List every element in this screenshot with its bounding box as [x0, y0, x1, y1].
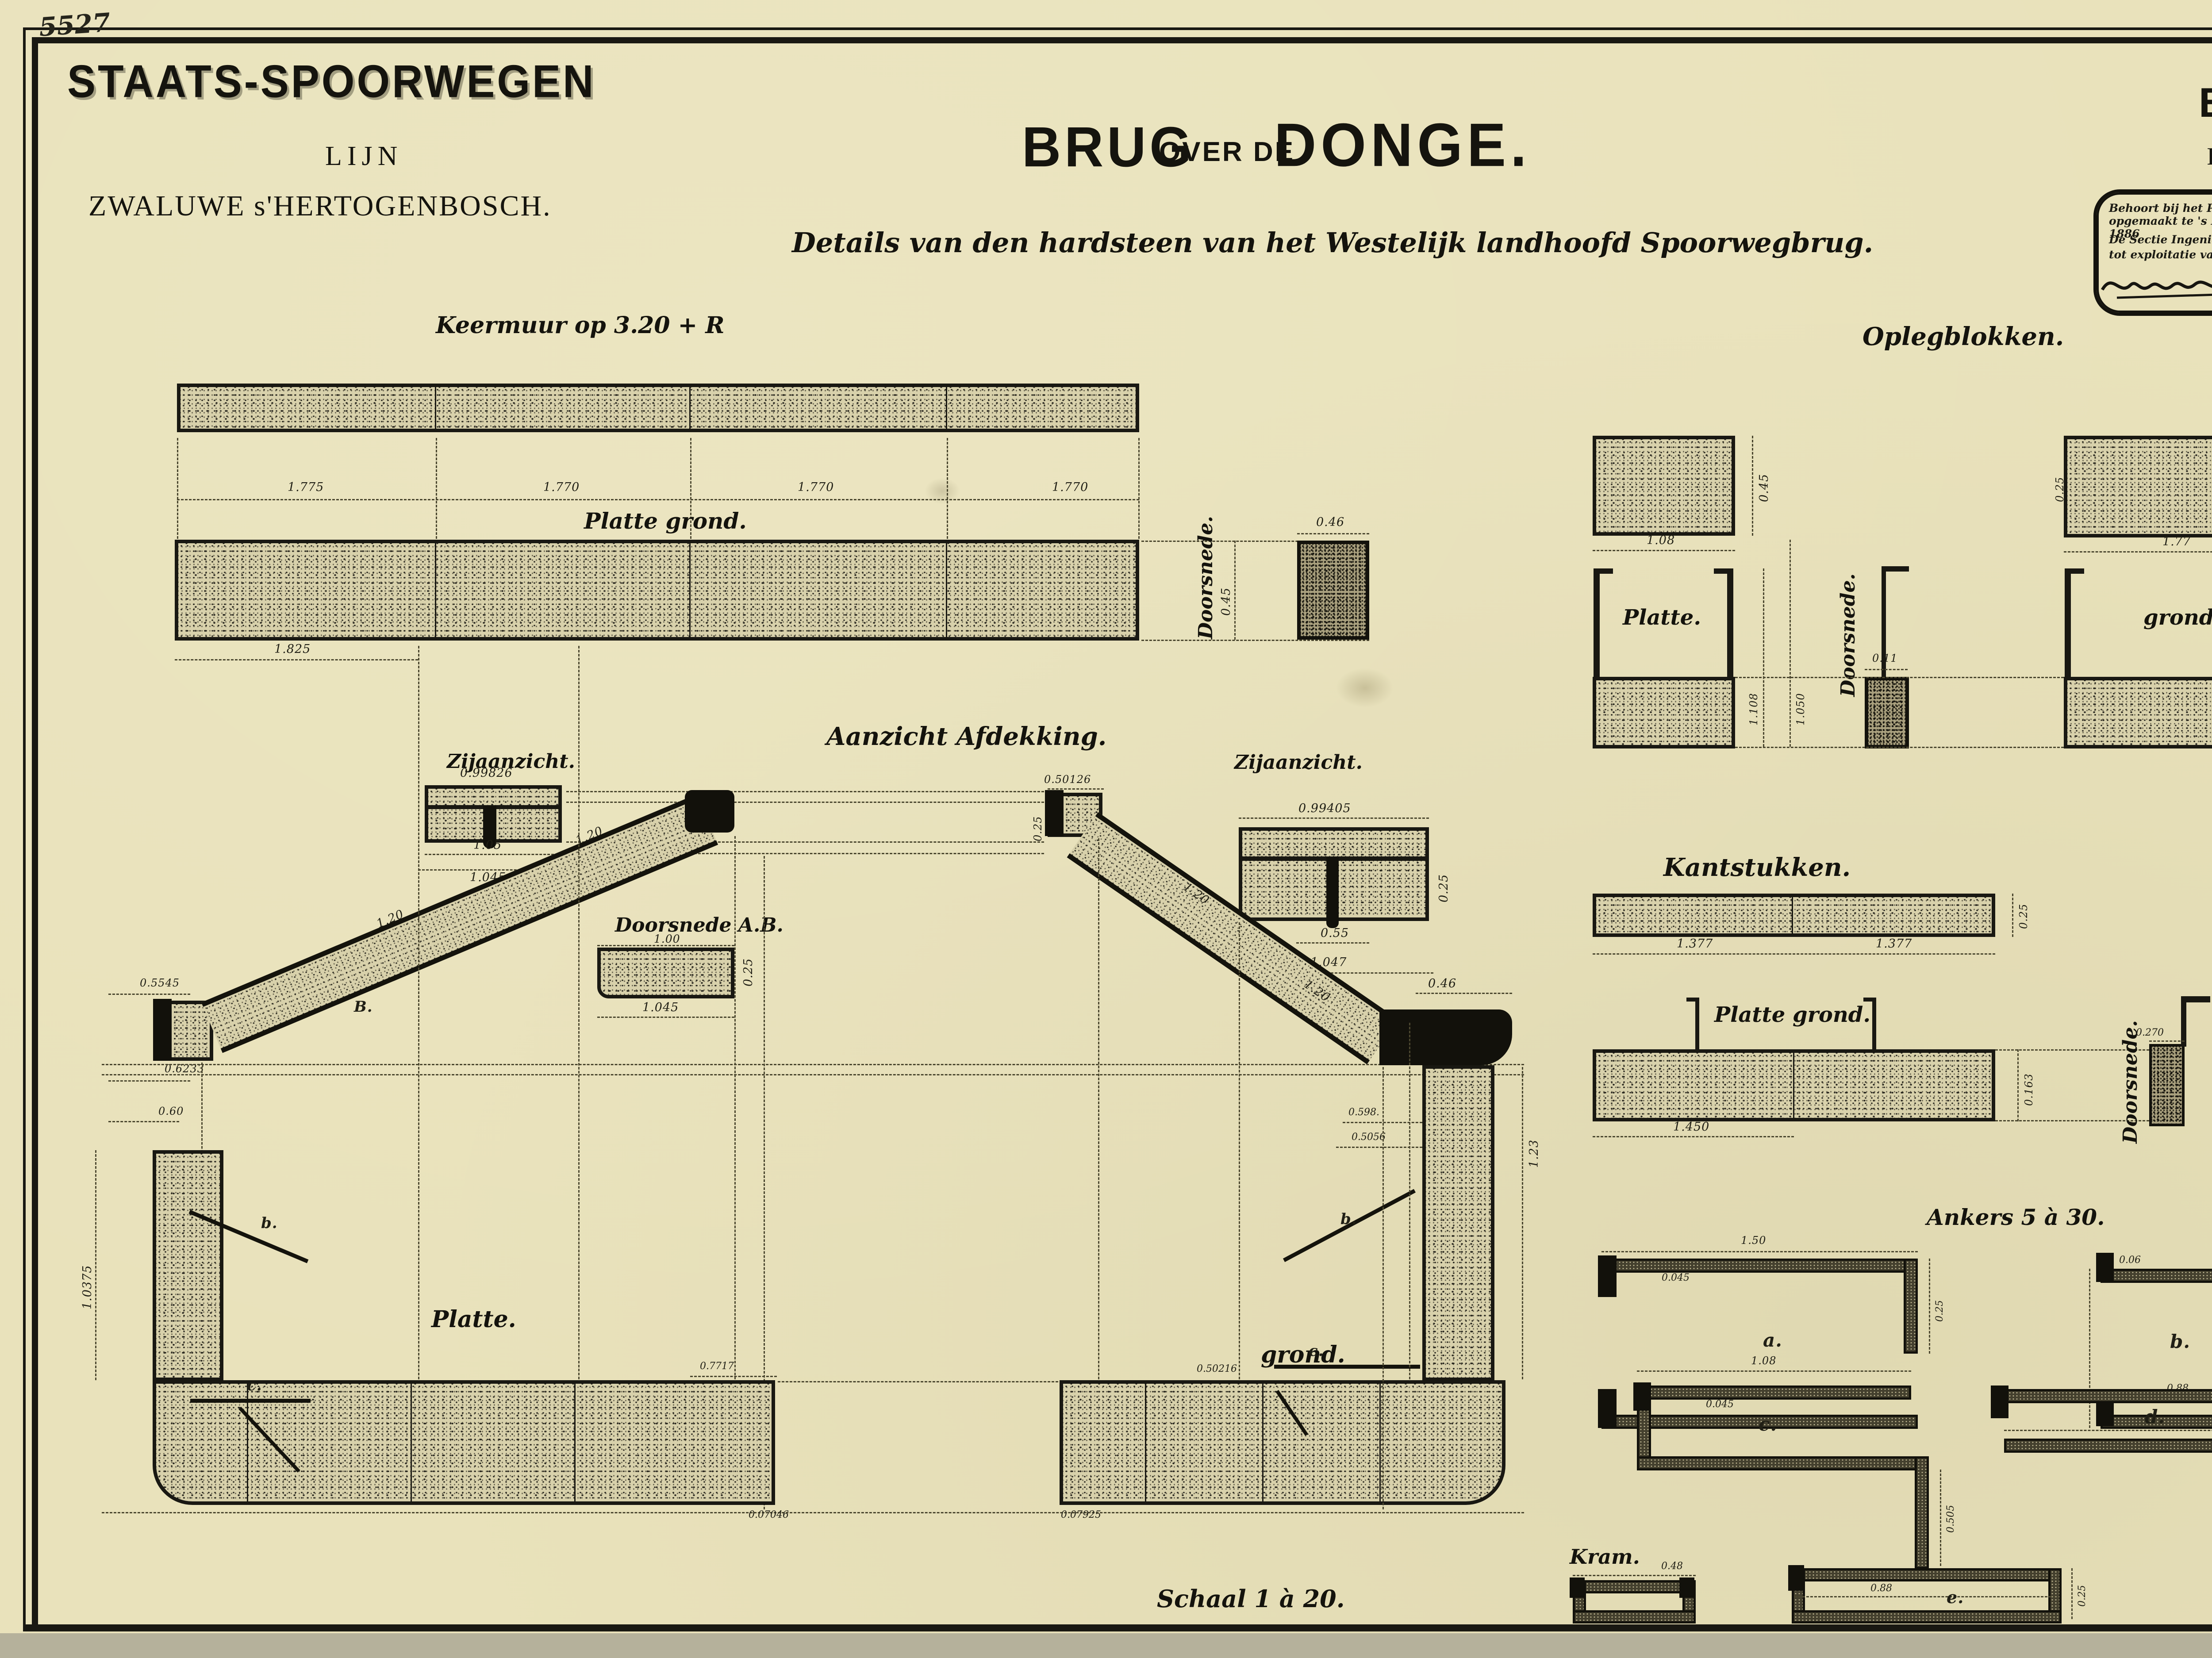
kantstuk-section-hook-h [2181, 996, 2210, 1002]
joint-line [435, 542, 436, 639]
dim-label: 0.7717 [700, 1361, 734, 1372]
dim-label: 0.25 [2017, 904, 2030, 929]
dim-line [690, 1376, 777, 1377]
dim-label: 0.46 [1316, 515, 1344, 529]
plan-left-wall [153, 1150, 223, 1381]
dim-label: 0.55 [1321, 926, 1349, 940]
dim-line [1048, 788, 1104, 790]
subtitle: Details van den hardsteen van het Westel… [792, 226, 1873, 259]
joint-line [946, 542, 947, 639]
dim-line [2064, 551, 2212, 553]
plan-right-wall [1422, 1065, 1494, 1381]
oplegblokken-title: Oplegblokken. [1863, 322, 2064, 351]
keermuur-plan [175, 540, 1139, 641]
opleg-plate [1727, 568, 1733, 677]
plan-right-label: grond. [1261, 1341, 1345, 1368]
opleg-plate-hook [1714, 568, 1733, 574]
anchor-mark: c. [247, 1377, 262, 1394]
keermuur-plan-label: Platte grond. [584, 508, 747, 534]
joint-line [1379, 1384, 1381, 1501]
anker-b-top [2101, 1269, 2212, 1283]
kantstukken-title: Kantstukken. [1663, 853, 1851, 882]
dim-label: 1.770 [1052, 480, 1088, 494]
drawing-sheet: 5527 STAATS-SPOORWEGEN LIJN ZWALUWE s'HE… [0, 0, 2212, 1658]
dim-line [1790, 540, 1791, 747]
sheet-count-pre: In 25 bladen 11 [2207, 143, 2212, 170]
opleg-plate [1594, 568, 1600, 677]
projection-line [1735, 747, 2064, 748]
border-left-inner [32, 37, 38, 1630]
kantstuk-pin [1695, 998, 1699, 1051]
dim-label: 0.25 [1437, 874, 1451, 902]
dim-label: 0.598. [1348, 1107, 1379, 1118]
opleg-plate-hook [2065, 568, 2084, 574]
paper-stain [925, 478, 960, 504]
dim-line [2017, 1049, 2019, 1121]
joint-line [1145, 1384, 1146, 1501]
line-word: LIJN [325, 141, 403, 172]
dim-line [95, 1150, 96, 1380]
opleg-plan-right-label: grond. [2143, 605, 2212, 630]
dim-label: 1.450 [1673, 1120, 1709, 1134]
dim-label: 1.050 [1794, 693, 1807, 725]
dim-label: 1.05 [473, 838, 502, 852]
anchor-mark: b. [261, 1214, 278, 1232]
coping-top-cap-left [685, 790, 734, 833]
kantstuk-plan-label: Platte grond. [1714, 1002, 1870, 1027]
bestek-number: BESTEK No 861. [2199, 79, 2212, 127]
projection-line [734, 836, 736, 1379]
projection-line [778, 1381, 1058, 1382]
opleg-plate [2065, 568, 2071, 677]
dim-line [1522, 1067, 1523, 1379]
dim-label: 1.377 [1677, 937, 1713, 951]
dim-label: 1.23 [1527, 1140, 1541, 1168]
dim-label: 1.08 [1751, 1355, 1776, 1367]
dim-line [1573, 1575, 1696, 1576]
dim-label: 0.06 [2119, 1255, 2141, 1266]
dim-label: 1.00 [654, 933, 680, 945]
dim-label: 1.50 [1741, 1234, 1766, 1247]
dim-label: 0.48 [1661, 1561, 1683, 1572]
section-ab-label: Doorsnede A.B. [615, 914, 783, 936]
dim-line [1929, 1259, 1930, 1354]
afdekking-title: Aanzicht Afdekking. [826, 722, 1106, 751]
projection-line [578, 646, 580, 1379]
section-ab-block [597, 948, 734, 998]
dim-label: 1.825 [274, 642, 311, 656]
border-top-outer [23, 27, 2212, 30]
dim-line [1752, 436, 1753, 536]
keermuur-title: Keermuur op 3.20 + R [436, 312, 725, 339]
dim-line [1234, 541, 1236, 640]
dim-label: 0.88 [1870, 1583, 1892, 1594]
projection-line [1239, 922, 1240, 1379]
dim-line [2071, 1568, 2073, 1619]
dim-line [425, 854, 562, 855]
dim-label: 0.5056 [1352, 1132, 1386, 1143]
dim-line [2089, 1269, 2090, 1428]
kram-label: Kram. [1570, 1545, 1640, 1569]
line-route: ZWALUWE s'HERTOGENBOSCH. [88, 189, 552, 223]
dim-label: 1.770 [543, 480, 580, 494]
joint-line [946, 386, 947, 430]
dim-label: 1.0375 [81, 1265, 94, 1309]
dim-label: 0.50216 [1197, 1363, 1237, 1374]
dim-line [1593, 1136, 1794, 1137]
dim-line [2012, 894, 2013, 937]
joint-line [1793, 1052, 1794, 1119]
dim-label: 1.108 [1747, 693, 1760, 725]
kram-top [1573, 1580, 1696, 1593]
company-name: STAATS-SPOORWEGEN [67, 56, 595, 108]
oplegblok-elev-right [2064, 436, 2212, 537]
title-donge: DONGE. [1274, 110, 1531, 180]
projection-line [436, 438, 437, 539]
ankers-title: Ankers 5 à 30. [1927, 1204, 2105, 1230]
anker-c-bottom [1637, 1456, 1929, 1470]
projection-line [1141, 640, 1369, 641]
zijaanzicht-right-pin [1326, 857, 1339, 928]
anker-a-right [1904, 1259, 1918, 1354]
projection-line [566, 791, 1044, 792]
dim-label: 0.045 [1706, 1399, 1734, 1410]
section-mark-B: B. [354, 998, 373, 1016]
dim-line [177, 499, 1139, 500]
dim-line [1794, 1596, 2055, 1597]
anker-a-cap-bl [1598, 1389, 1617, 1428]
dim-label: 1.377 [1876, 937, 1912, 951]
anchor-mark: c. [1309, 1342, 1324, 1360]
anker-c-desc [1915, 1456, 1929, 1569]
dim-line [1763, 568, 1764, 747]
dim-line [1296, 942, 1369, 944]
dim-label: 0.45 [1219, 587, 1233, 616]
dim-line [1601, 1251, 1918, 1252]
dim-label: 1.77 [2162, 535, 2191, 549]
anker-e-label: e. [1947, 1587, 1964, 1607]
anker-c-top [1637, 1386, 1911, 1400]
anker-b-cap-tl [2096, 1253, 2114, 1282]
kantstuk-pin [1872, 998, 1876, 1051]
kantstuk-section-label: Doorsnede. [2119, 1020, 2142, 1144]
dim-label: 0.25 [1032, 816, 1044, 841]
scale-label: Schaal 1 à 20. [1157, 1585, 1345, 1613]
dim-line [1593, 550, 1735, 551]
dim-label: 0.163 [2023, 1073, 2035, 1106]
approval-stamp: Behoort bij het Proces-verbaal in drievo… [2093, 189, 2212, 316]
opleg-plan-left-label: Platte. [1623, 605, 1701, 630]
opleg-section-block [1865, 677, 1909, 748]
anker-c-cap-tl [1633, 1382, 1651, 1411]
opleg-plate-hook [1594, 568, 1613, 574]
anker-b-label: b. [2170, 1331, 2190, 1352]
dim-line [1593, 953, 1995, 955]
kantstuk-pin-hook [1686, 998, 1699, 1002]
dim-line [1865, 669, 1908, 670]
dim-label: 0.45 [1757, 474, 1771, 502]
dim-line [597, 945, 734, 946]
scan-edge-strip [0, 1633, 2212, 1658]
anker-d-top [1995, 1389, 2212, 1403]
dim-line [108, 1080, 190, 1082]
dim-label: 0.60 [158, 1105, 184, 1117]
anker-d-bottom [2004, 1439, 2212, 1453]
joint-line [574, 1384, 576, 1501]
dim-line [108, 994, 190, 995]
projection-line [102, 1512, 1524, 1513]
anchor-line-c-right [1274, 1365, 1420, 1369]
opleg-plan-left-block [1593, 677, 1735, 748]
dim-label: 0.505 [1945, 1505, 1956, 1533]
kantstuk-pin-hook [1863, 998, 1876, 1002]
projection-line [177, 438, 178, 539]
dim-line [108, 1121, 179, 1122]
joint-line [1792, 896, 1793, 935]
border-top-inner [32, 37, 2212, 43]
stamp-left-role1: De Sectie Ingenieur bij de Maatschappij [2109, 233, 2212, 246]
dim-line [1297, 533, 1369, 534]
dim-label: 1.770 [798, 480, 834, 494]
anker-d-label: d. [2145, 1406, 2165, 1428]
joint-line [411, 1384, 412, 1501]
dim-label: 0.99405 [1298, 802, 1351, 815]
coping-stub-left-cap [153, 999, 172, 1061]
dim-label: 0.07925 [1061, 1509, 1101, 1520]
dim-line [1940, 1470, 1941, 1566]
anker-e-bottom [1792, 1610, 2062, 1623]
anker-c-label: c. [1759, 1413, 1777, 1435]
dim-label: 1.775 [288, 480, 324, 494]
dim-label: 0.11 [1872, 652, 1897, 664]
dim-line [2149, 1040, 2185, 1042]
opleg-plan-right-block [2064, 677, 2212, 748]
projection-line [1409, 1023, 1410, 1379]
anker-a-label: a. [1763, 1329, 1782, 1351]
projection-line [947, 438, 948, 539]
dim-label: 0.25 [2054, 477, 2066, 502]
keermuur-section-block [1297, 541, 1369, 640]
dim-line [1637, 1370, 1911, 1372]
kantstuk-elevation [1593, 894, 1995, 937]
projection-line [1382, 1067, 1384, 1509]
dim-line [1416, 993, 1512, 994]
anker-e-cap-tl [1788, 1565, 1804, 1591]
projection-line [1138, 438, 1140, 539]
opleg-post-hook [1882, 566, 1909, 572]
anker-e-top [1792, 1568, 2062, 1581]
projection-line [102, 1074, 1524, 1075]
kantstuk-section-hook-v [2181, 999, 2186, 1047]
projection-line [102, 1064, 1524, 1065]
anker-a-cap-tl [1598, 1255, 1617, 1297]
paper-stain [1336, 668, 1394, 708]
oplegblok-elev-left [1593, 436, 1735, 536]
joint-line [689, 542, 691, 639]
anker-d-cap-tl [1991, 1386, 2008, 1418]
dim-label: 0.07046 [749, 1509, 789, 1520]
kantstuk-section-block [2149, 1044, 2185, 1126]
anker-a-top [1601, 1259, 1918, 1273]
dim-label: 0.46 [1428, 977, 1456, 990]
kram-bottom [1573, 1610, 1696, 1623]
dim-label: 0.50126 [1044, 773, 1091, 786]
dim-label: 1.08 [1647, 533, 1675, 547]
stamp-left-role2: tot exploitatie van Staatsspoorwegen. [2109, 248, 2212, 261]
coping-stub-right-cap [1045, 790, 1064, 836]
joint-line [435, 386, 436, 430]
bestek-text: BESTEK N [2199, 79, 2212, 126]
projection-line [418, 646, 419, 1379]
dim-line [597, 1017, 734, 1018]
joint-line [689, 386, 691, 430]
projection-line [1735, 677, 2064, 678]
coping-elbow-right [1379, 1009, 1512, 1065]
zijaanzicht-right-label: Zijaanzicht. [1234, 751, 1363, 774]
opleg-section-label: Doorsnede. [1837, 573, 1859, 697]
plan-left-label: Platte. [431, 1306, 516, 1333]
anchor-mark: b. [1340, 1210, 1357, 1228]
dim-line [175, 659, 418, 660]
dim-label: 0.045 [1662, 1272, 1690, 1283]
dim-label: 0.25 [741, 958, 755, 986]
projection-line [1098, 838, 1099, 1379]
dim-label: 0.270 [2136, 1027, 2164, 1038]
keermuur-section-label: Doorsnede. [1194, 516, 1217, 639]
kram-cap-r [1679, 1577, 1694, 1598]
dim-label: 0.25 [2077, 1585, 2088, 1607]
registration-number: 5527 [38, 7, 111, 42]
anchor-line-c-left [190, 1399, 311, 1403]
keermuur-elevation [177, 384, 1139, 432]
border-left-outer [23, 27, 26, 1629]
dim-label: 0.25 [1934, 1300, 1945, 1322]
border-bottom [23, 1624, 2212, 1631]
dim-label: 1.045 [642, 1001, 679, 1014]
projection-line [566, 802, 1044, 803]
dim-line [1239, 817, 1429, 819]
dim-line [2004, 1430, 2212, 1431]
joint-line [1262, 1384, 1263, 1501]
dim-label: 0.5545 [140, 977, 180, 989]
signature-left [2100, 262, 2212, 307]
sheet-count: In 25 bladen 11e blad. [2207, 142, 2212, 171]
kram-cap-l [1570, 1577, 1585, 1598]
dim-label: 0.99826 [460, 766, 513, 780]
